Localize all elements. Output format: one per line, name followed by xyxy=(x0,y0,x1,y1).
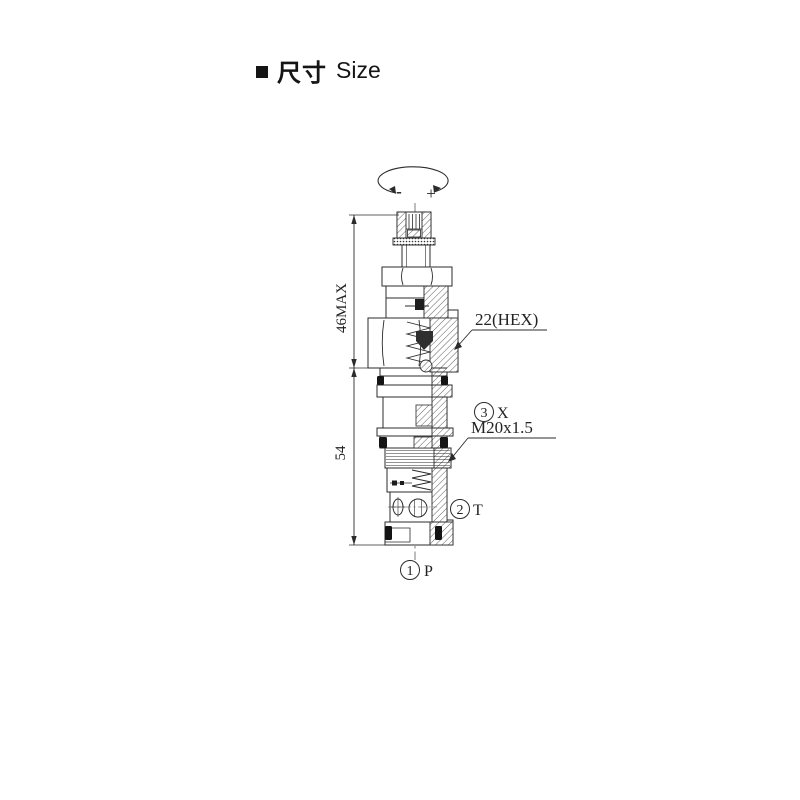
knurled-ring xyxy=(393,238,435,245)
rotation-plus-label: + xyxy=(426,184,436,203)
callout-thread-leader xyxy=(448,438,556,462)
seat-section xyxy=(416,405,432,426)
pin-detail xyxy=(392,481,397,486)
internal-seal xyxy=(415,299,424,310)
rotation-adjust-icon xyxy=(378,167,448,194)
adjustment-stem xyxy=(402,245,430,267)
port-x-letter: X xyxy=(497,405,509,422)
port-p-letter: P xyxy=(424,563,433,580)
check-ball xyxy=(420,360,432,372)
spring-seat-section xyxy=(414,437,432,448)
port-p-number: 1 xyxy=(407,564,414,579)
lock-nut xyxy=(382,267,452,286)
valve-body xyxy=(368,212,458,545)
dimension-46max: 46MAX xyxy=(334,283,350,333)
port-p-label: 1 P xyxy=(401,561,434,581)
pin-detail xyxy=(400,481,404,485)
dimension-54: 54 xyxy=(333,445,349,461)
adjustment-cap xyxy=(393,212,435,245)
port-t-number: 2 xyxy=(457,503,464,518)
page: 尺寸 Size - + xyxy=(0,0,800,800)
port-t-label: 2 T xyxy=(451,500,484,520)
port-t-letter: T xyxy=(473,502,483,519)
callout-hex-leader xyxy=(454,330,547,350)
rotation-minus-label: - xyxy=(396,182,402,201)
valve-technical-drawing: - + xyxy=(0,0,800,800)
callout-hex-label: 22(HEX) xyxy=(475,310,538,329)
port-x-number: 3 xyxy=(481,406,488,421)
